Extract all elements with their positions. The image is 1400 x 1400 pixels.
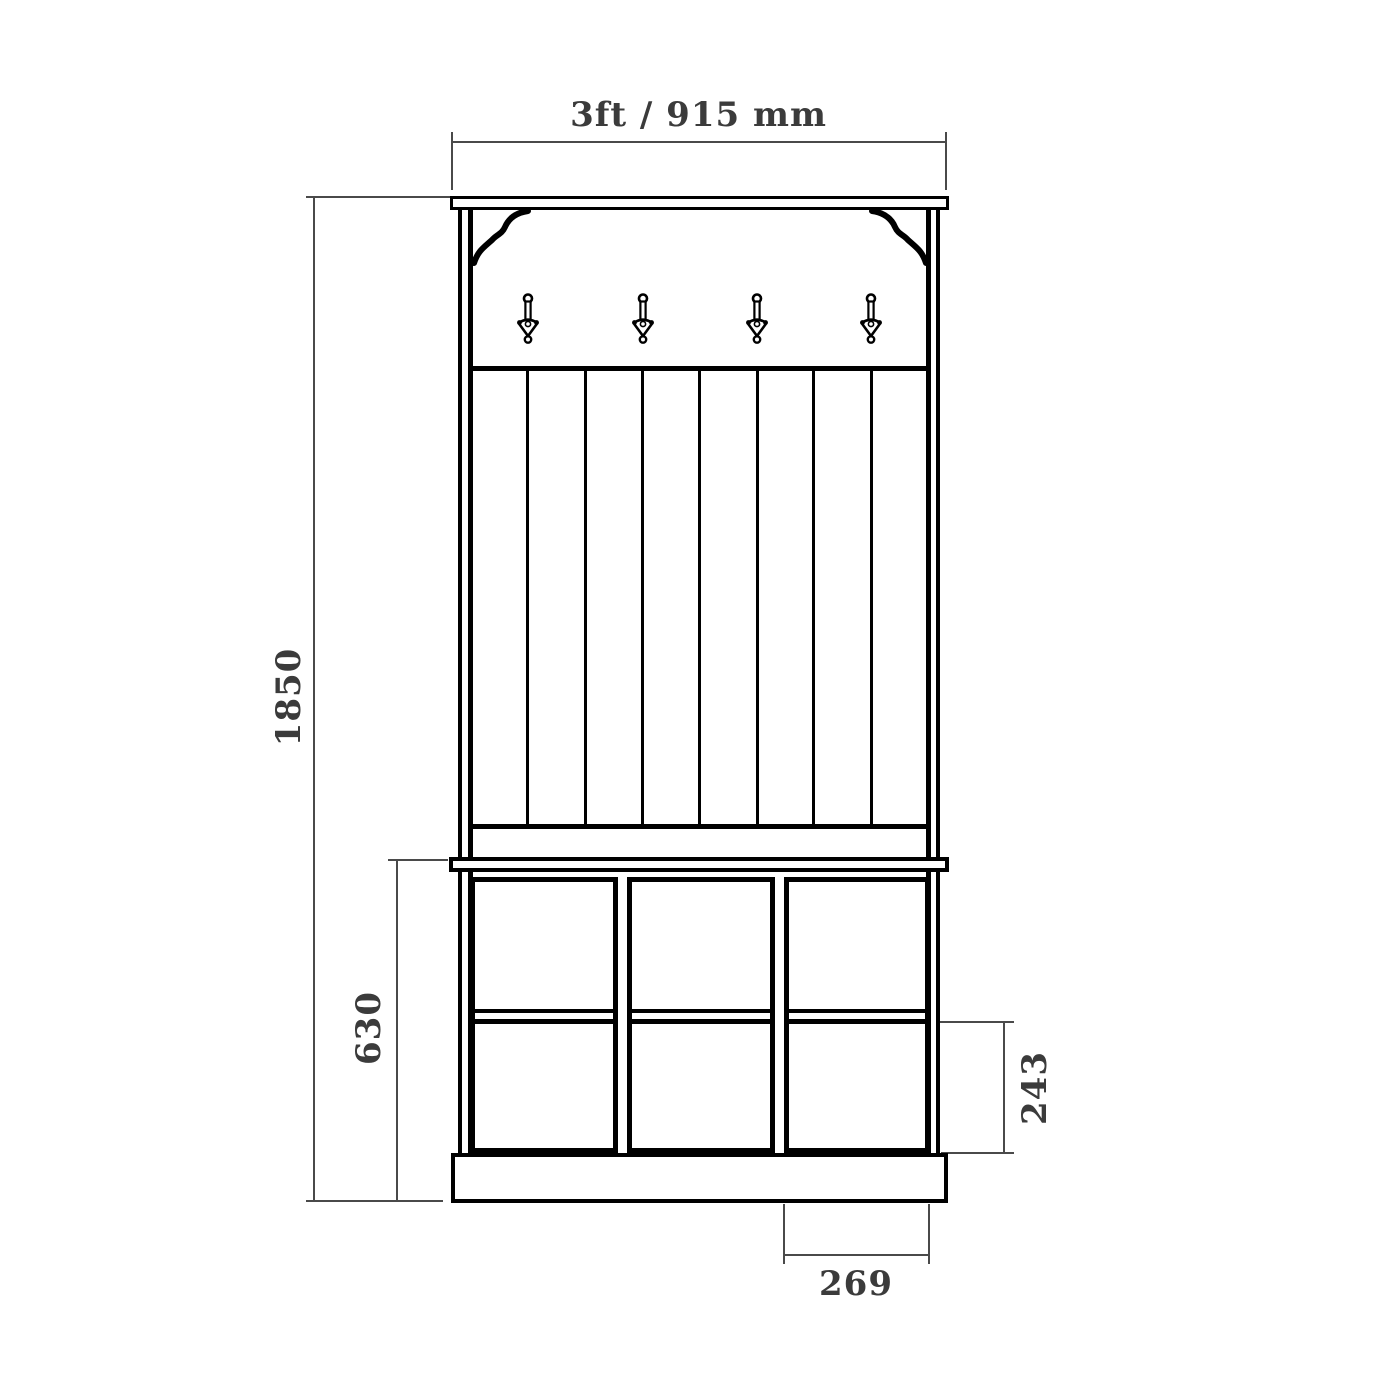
lower-height-dimension-label: 630 (349, 968, 389, 1088)
cubby-height-dimension-extension-top (938, 1021, 1014, 1023)
height-dimension-label: 1850 (269, 627, 309, 767)
corner-brackets (450, 196, 950, 276)
cubby-column (470, 877, 618, 1153)
bench-seat-board (449, 857, 949, 872)
dimension-drawing: 3ft / 915 mm 1850 630 243 269 (0, 0, 1400, 1400)
cubby-shelf-top-edge (475, 1009, 613, 1013)
right-ogee-bracket-icon (872, 211, 926, 263)
cubby-height-dimension-extension-bottom (941, 1152, 1014, 1154)
lower-height-dimension-extension-top (388, 859, 448, 861)
coat-hook-icon (856, 293, 886, 345)
right-post-outer-edge (936, 208, 940, 1154)
cubby-column (627, 877, 775, 1153)
height-dimension-extension-bottom (306, 1200, 443, 1202)
cubby-shelf-bottom-edge (789, 1019, 925, 1024)
coat-hook-icon (513, 293, 543, 345)
back-slat-line (812, 371, 815, 824)
height-dimension-extension-top (306, 196, 450, 198)
coat-hook-icon (742, 293, 772, 345)
width-dimension-extension-right (945, 132, 947, 190)
back-slat-line (870, 371, 873, 824)
height-dimension-line (313, 196, 315, 1202)
slat-bottom-rail (473, 824, 926, 829)
cubby-width-dimension-line (783, 1254, 930, 1256)
cubby-height-dimension-line (1003, 1021, 1005, 1154)
back-slat-line (698, 371, 701, 824)
back-slat-line (641, 371, 644, 824)
back-slat-line (526, 371, 529, 824)
cubby-column (784, 877, 930, 1153)
coat-hook-icon (628, 293, 658, 345)
cubby-height-dimension-label: 243 (1015, 1028, 1055, 1148)
width-dimension-line (452, 141, 946, 143)
width-dimension-label: 3ft / 915 mm (450, 95, 947, 137)
width-dimension-extension-left (451, 132, 453, 190)
back-slat-line (756, 371, 759, 824)
cubby-shelf-bottom-edge (632, 1019, 770, 1024)
back-slat-line (584, 371, 587, 824)
plinth-base (451, 1153, 948, 1203)
cubby-shelf-top-edge (789, 1009, 925, 1013)
lower-height-dimension-line (396, 859, 398, 1202)
cubby-width-dimension-label: 269 (796, 1264, 916, 1304)
left-ogee-bracket-icon (474, 211, 528, 263)
left-post-outer-edge (458, 208, 462, 1154)
cubby-shelf-bottom-edge (475, 1019, 613, 1024)
cubby-shelf-top-edge (632, 1009, 770, 1013)
